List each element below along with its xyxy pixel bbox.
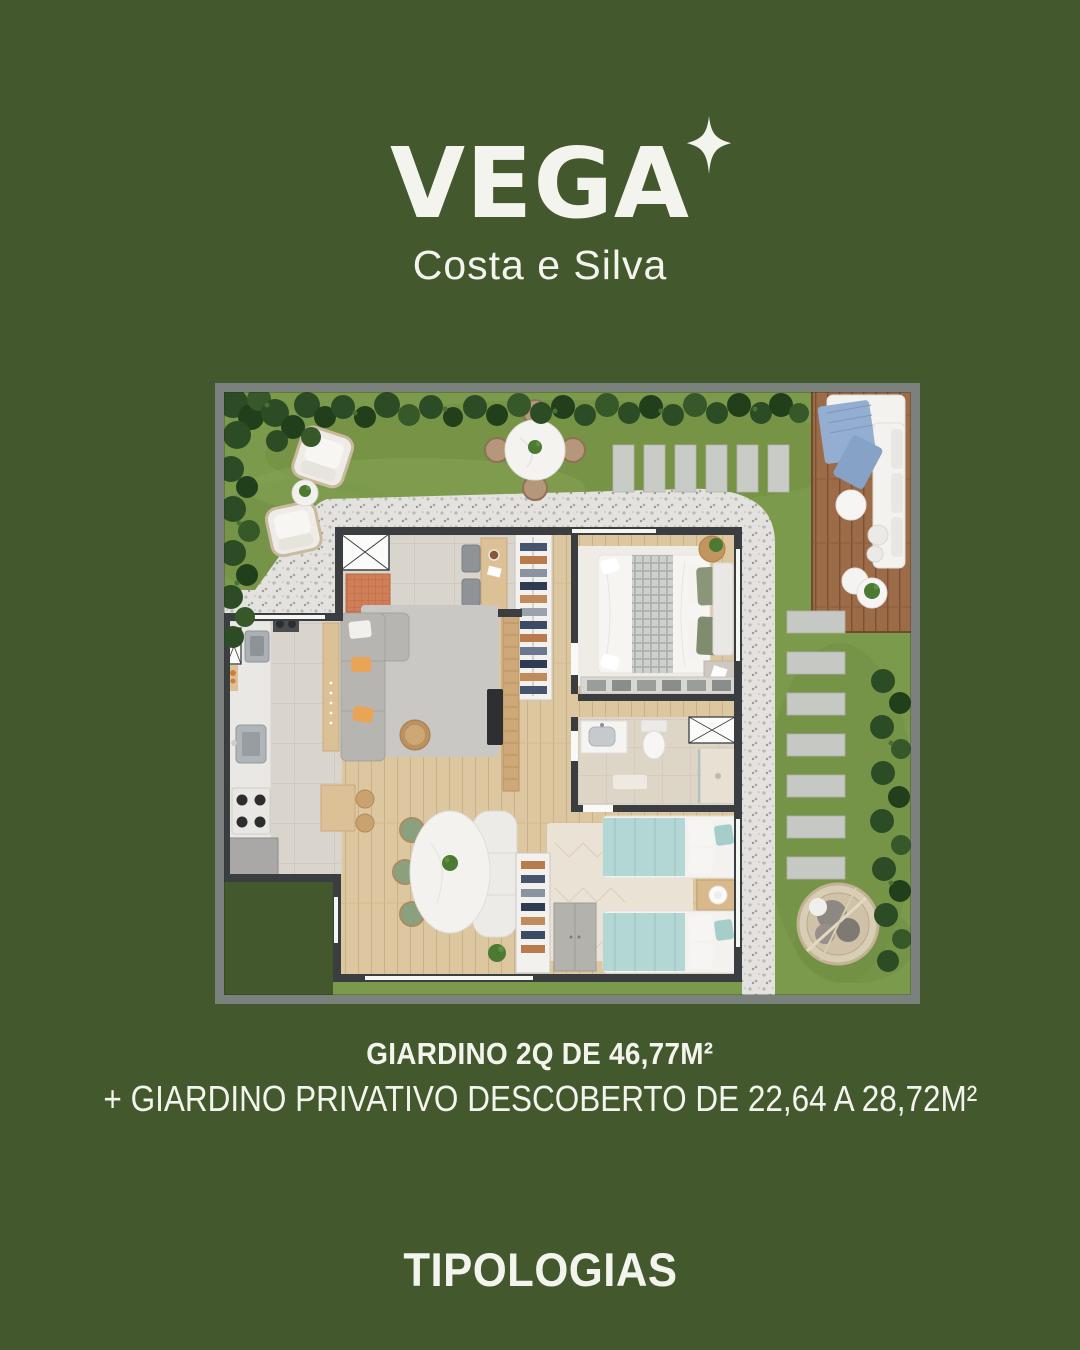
pouf xyxy=(867,546,883,562)
caption: GIARDINO 2Q DE 46,77M² + GIARDINO PRIVAT… xyxy=(0,1036,1080,1120)
desk-chair xyxy=(462,545,480,572)
tv xyxy=(487,689,503,745)
brand-subtitle: Costa e Silva xyxy=(0,244,1080,286)
floor-plant xyxy=(488,944,506,962)
unit-subtitle: + GIARDINO PRIVATIVO DESCOBERTO DE 22,64… xyxy=(0,1078,1080,1120)
kids-bed-1 xyxy=(603,816,739,878)
stool xyxy=(356,790,374,808)
floor-plan-render xyxy=(215,383,920,1012)
plan-notch xyxy=(224,882,333,995)
master-wardrobe xyxy=(581,677,735,694)
kids-bedroom xyxy=(516,816,739,973)
brand-wordmark: VEGA xyxy=(390,127,690,240)
stool xyxy=(356,814,374,832)
toilet xyxy=(641,720,667,759)
unit-title: GIARDINO 2Q DE 46,77M² xyxy=(0,1036,1080,1072)
bathroom xyxy=(578,717,735,805)
section-title: TIPOLOGIAS xyxy=(0,1242,1080,1297)
lounge-armchair-2 xyxy=(264,500,323,557)
deck-coffee-table xyxy=(836,490,866,520)
garden-table-plant xyxy=(528,440,542,454)
kitchen-tall-cabinet xyxy=(323,623,339,751)
kids-bed-2 xyxy=(603,911,739,973)
table-plant xyxy=(442,855,458,871)
kitchen-sink xyxy=(231,725,266,763)
master-side-table xyxy=(699,536,725,562)
cooktop xyxy=(232,788,270,834)
orange-pillow xyxy=(351,657,371,672)
shower xyxy=(699,749,735,803)
kitchen-cabinet xyxy=(228,838,278,875)
kids-wardrobe xyxy=(554,903,596,971)
coffee-cup xyxy=(489,550,499,560)
pouf xyxy=(868,525,888,545)
coffee-table xyxy=(400,720,430,750)
headboard xyxy=(713,563,733,655)
desk-chair xyxy=(462,579,480,606)
poster: VEGA Costa e Silva xyxy=(0,0,1080,1350)
kids-closet xyxy=(516,853,550,973)
kitchen-peninsula xyxy=(321,785,355,831)
bathroom-vanity xyxy=(581,721,627,753)
dining-table xyxy=(410,811,490,933)
garden-side-table xyxy=(292,480,318,506)
kids-nightstand xyxy=(697,880,739,910)
hanging-egg-chair xyxy=(798,884,878,964)
white-pillow xyxy=(348,620,372,639)
orange-pillow xyxy=(352,706,374,724)
plaid-runner xyxy=(632,555,673,673)
bath-mat xyxy=(613,775,647,789)
floor-plan xyxy=(215,383,920,1012)
sparkle-icon xyxy=(682,116,736,174)
logo: VEGA Costa e Silva xyxy=(0,136,1080,286)
